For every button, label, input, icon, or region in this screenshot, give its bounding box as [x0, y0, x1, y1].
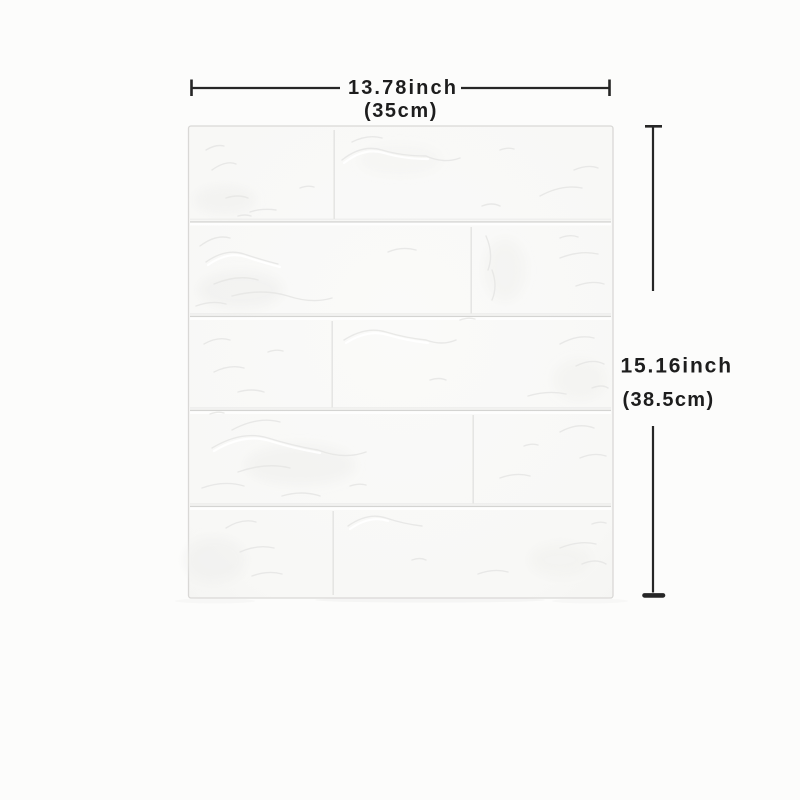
svg-text:(38.5cm): (38.5cm): [623, 389, 715, 411]
svg-text:13.78inch: 13.78inch: [348, 77, 458, 99]
svg-text:15.16inch: 15.16inch: [621, 355, 733, 378]
svg-text:(35cm): (35cm): [364, 100, 438, 122]
